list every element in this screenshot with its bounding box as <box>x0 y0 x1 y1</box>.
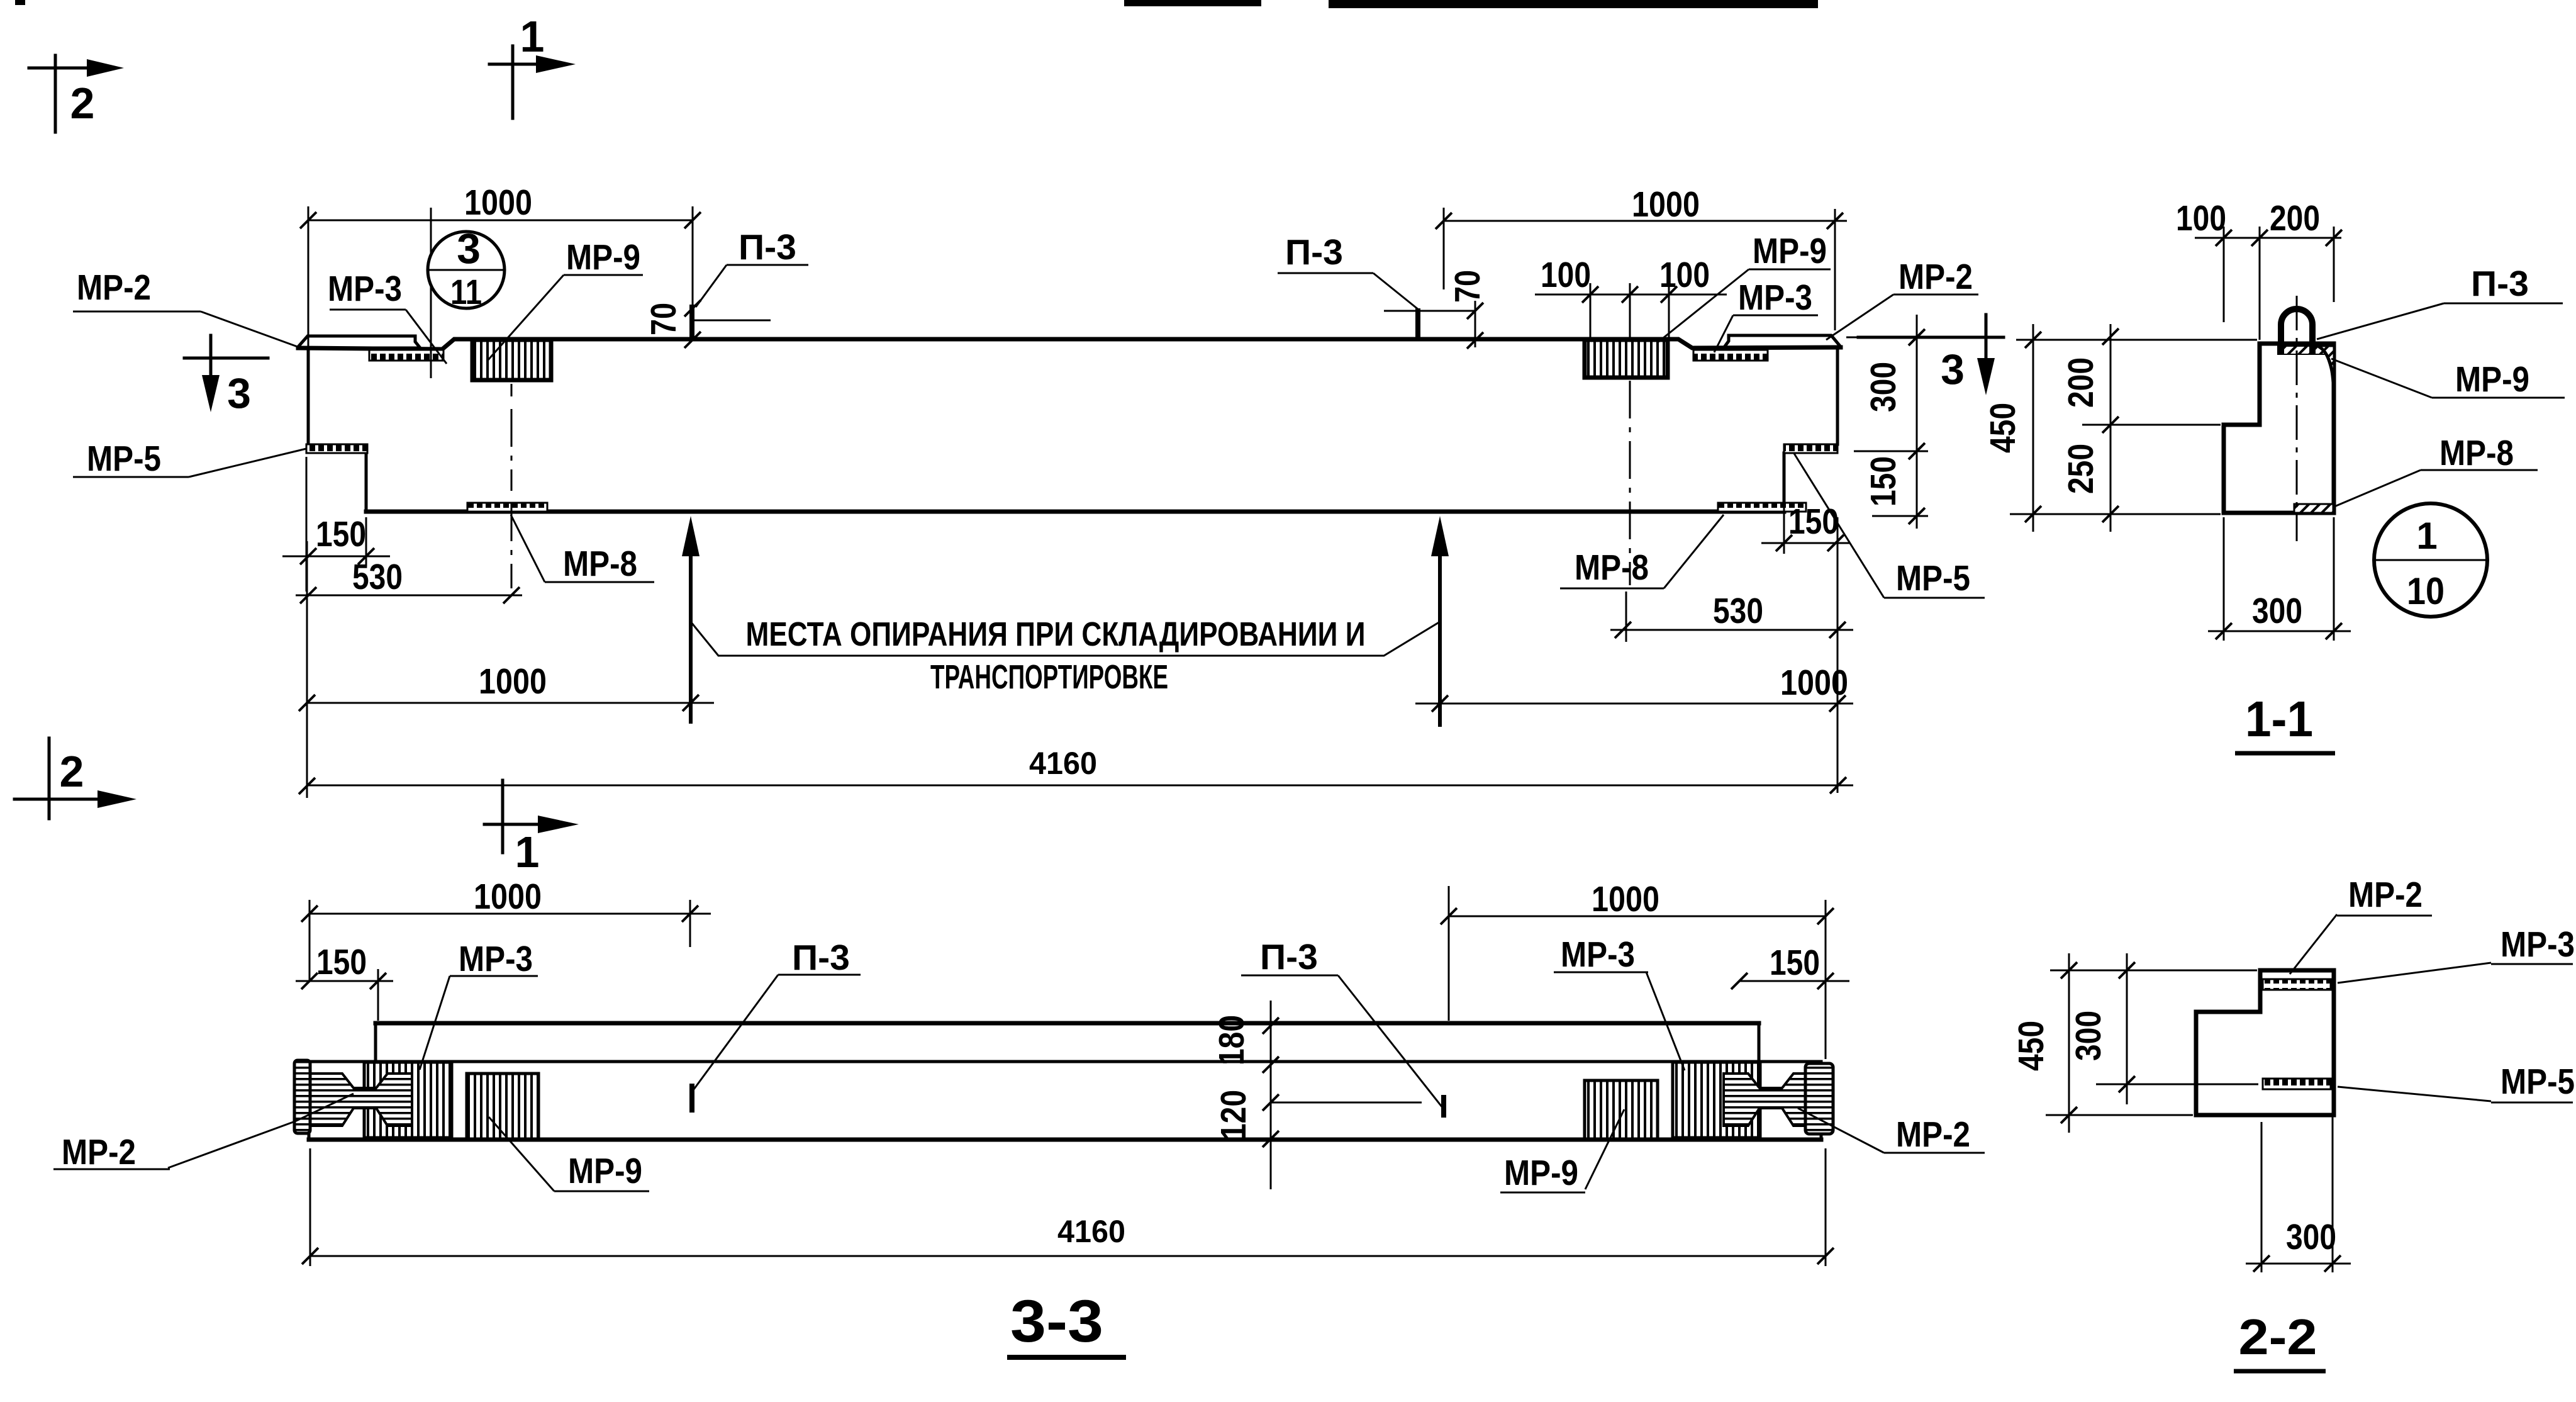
svg-text:10: 10 <box>2407 570 2445 612</box>
svg-text:МР-3: МР-3 <box>459 939 533 979</box>
svg-text:450: 450 <box>1983 403 2023 453</box>
svg-text:150: 150 <box>1788 502 1839 542</box>
svg-text:200: 200 <box>2270 198 2320 238</box>
svg-text:100: 100 <box>1541 255 1591 295</box>
svg-text:200: 200 <box>2061 357 2101 408</box>
svg-text:150: 150 <box>316 942 367 982</box>
svg-text:МР-9: МР-9 <box>566 237 640 278</box>
svg-text:530: 530 <box>352 557 403 597</box>
svg-text:4160: 4160 <box>1057 1214 1125 1249</box>
svg-text:П-3: П-3 <box>739 227 796 267</box>
svg-text:300: 300 <box>2286 1217 2336 1257</box>
svg-text:300: 300 <box>2068 1011 2109 1061</box>
svg-text:МР-3: МР-3 <box>328 269 402 309</box>
svg-text:1: 1 <box>515 827 540 877</box>
svg-text:МР-9: МР-9 <box>1504 1153 1578 1193</box>
svg-text:П-3: П-3 <box>1285 232 1343 272</box>
svg-text:МР-9: МР-9 <box>1753 231 1827 271</box>
svg-text:МЕСТА ОПИРАНИЯ ПРИ СКЛАДИРОВАН: МЕСТА ОПИРАНИЯ ПРИ СКЛАДИРОВАНИИ И <box>746 615 1366 653</box>
svg-text:120: 120 <box>1213 1090 1254 1140</box>
svg-text:П-3: П-3 <box>792 938 850 978</box>
svg-text:1000: 1000 <box>479 661 547 702</box>
svg-text:100: 100 <box>2176 198 2226 238</box>
svg-text:П-3: П-3 <box>1260 937 1318 977</box>
svg-text:150: 150 <box>1770 943 1820 983</box>
svg-text:1000: 1000 <box>1780 663 1848 703</box>
svg-text:МР-9: МР-9 <box>2455 359 2529 400</box>
svg-text:МР-8: МР-8 <box>563 544 637 584</box>
svg-text:1000: 1000 <box>1632 184 1700 225</box>
svg-text:МР-5: МР-5 <box>1896 558 1970 598</box>
svg-text:1: 1 <box>2416 515 2437 557</box>
svg-text:150: 150 <box>1863 456 1904 507</box>
svg-text:1: 1 <box>520 12 545 61</box>
svg-text:МР-5: МР-5 <box>87 439 161 479</box>
svg-text:МР-8: МР-8 <box>2439 433 2514 473</box>
svg-text:530: 530 <box>1713 591 1763 631</box>
svg-text:МР-8: МР-8 <box>1575 547 1649 588</box>
svg-text:250: 250 <box>2061 444 2101 494</box>
svg-text:3: 3 <box>457 225 481 272</box>
svg-text:1-1: 1-1 <box>2245 691 2313 747</box>
svg-text:300: 300 <box>1863 362 1904 412</box>
svg-text:МР-2: МР-2 <box>77 267 151 308</box>
svg-text:450: 450 <box>2011 1021 2051 1071</box>
svg-text:100: 100 <box>1659 255 1710 295</box>
svg-text:МР-5: МР-5 <box>2501 1062 2575 1102</box>
svg-text:2: 2 <box>60 747 84 796</box>
svg-text:1000: 1000 <box>1592 879 1659 919</box>
svg-text:МР-3: МР-3 <box>1561 934 1635 975</box>
svg-text:МР-2: МР-2 <box>1899 257 1973 297</box>
svg-text:МР-2: МР-2 <box>1896 1114 1970 1155</box>
svg-text:3-3: 3-3 <box>1010 1288 1103 1355</box>
svg-text:150: 150 <box>316 514 366 554</box>
svg-text:МР-2: МР-2 <box>2348 875 2423 915</box>
svg-text:180: 180 <box>1212 1015 1252 1065</box>
svg-text:2: 2 <box>70 79 95 128</box>
svg-text:4160: 4160 <box>1029 746 1097 781</box>
svg-text:ТРАНСПОРТИРОВКЕ: ТРАНСПОРТИРОВКЕ <box>930 658 1168 696</box>
svg-text:1000: 1000 <box>464 182 532 223</box>
svg-text:3: 3 <box>227 369 251 417</box>
svg-text:1000: 1000 <box>474 877 542 917</box>
svg-text:3: 3 <box>1941 345 1965 393</box>
svg-text:П-3: П-3 <box>2471 264 2529 304</box>
svg-text:11: 11 <box>450 272 482 311</box>
svg-text:МР-2: МР-2 <box>62 1132 136 1172</box>
svg-text:МР-9: МР-9 <box>568 1151 642 1191</box>
svg-text:70: 70 <box>1447 270 1488 303</box>
svg-text:2-2: 2-2 <box>2239 1309 2317 1365</box>
svg-text:70: 70 <box>644 303 684 335</box>
svg-text:МР-3: МР-3 <box>1738 278 1812 318</box>
svg-text:МР-3: МР-3 <box>2501 924 2575 965</box>
svg-text:300: 300 <box>2252 591 2302 631</box>
